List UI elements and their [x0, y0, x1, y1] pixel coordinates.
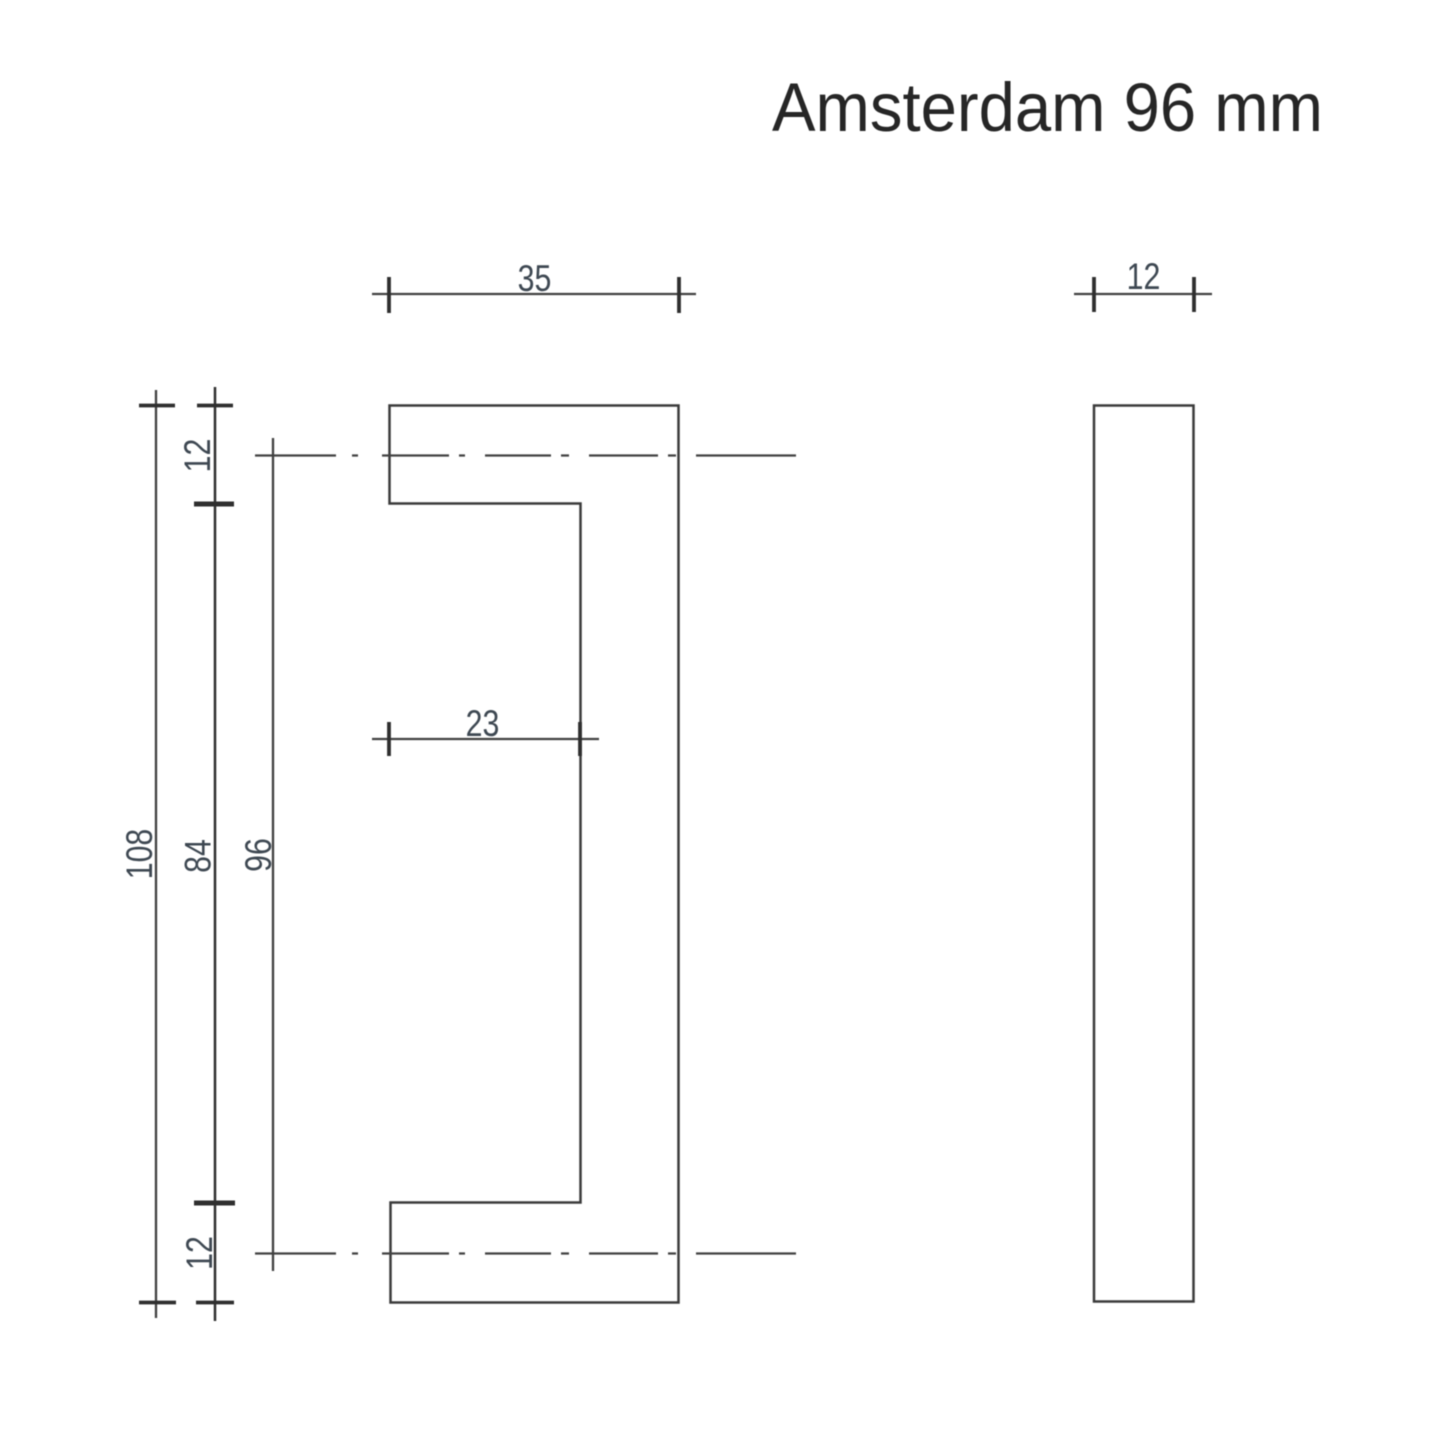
svg-text:23: 23 — [466, 703, 500, 745]
svg-text:12: 12 — [1127, 256, 1161, 298]
svg-text:12: 12 — [177, 439, 219, 473]
svg-text:108: 108 — [119, 829, 161, 880]
svg-text:Amsterdam 96 mm: Amsterdam 96 mm — [772, 69, 1323, 146]
svg-text:96: 96 — [238, 838, 280, 872]
svg-text:84: 84 — [178, 839, 220, 873]
svg-text:35: 35 — [518, 258, 552, 300]
svg-text:12: 12 — [179, 1236, 221, 1270]
